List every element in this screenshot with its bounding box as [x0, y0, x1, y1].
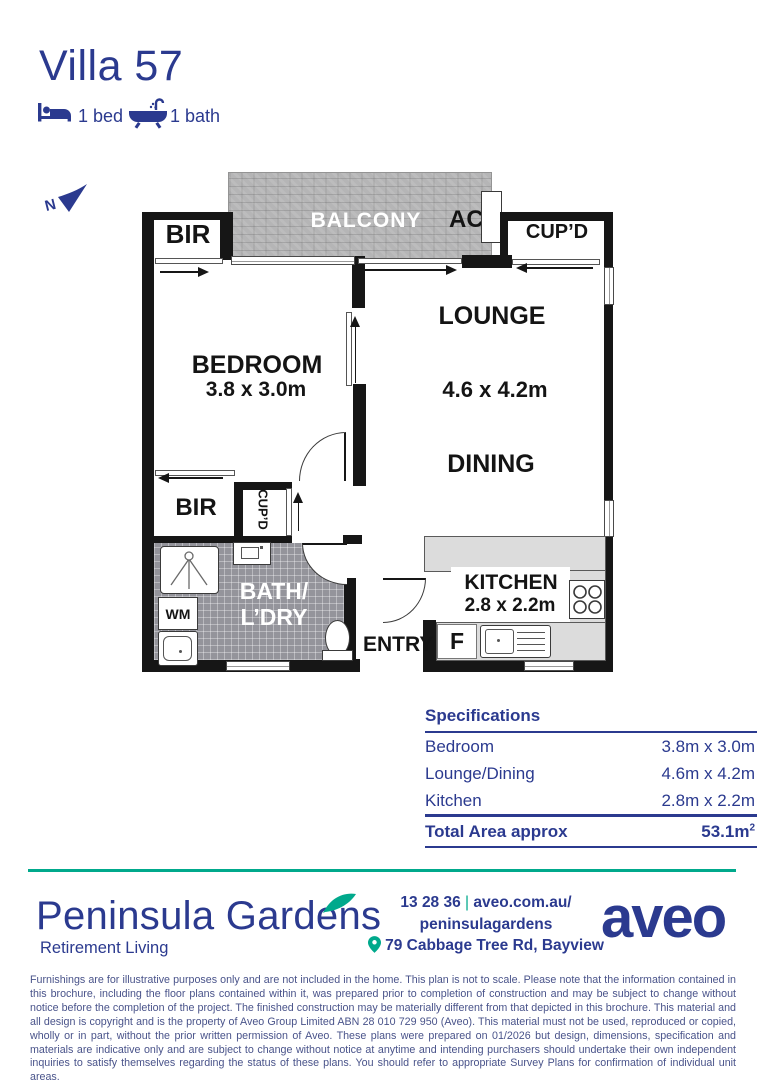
- arrow-right-icon: [446, 265, 457, 275]
- community-subtitle: Retirement Living: [40, 939, 168, 958]
- bedroom-door-arc: [299, 432, 346, 481]
- arrow-up-icon: [350, 316, 360, 327]
- brochure-page: Villa 57 1 bed 1 bath N: [0, 0, 764, 1080]
- kitchen-window-side: [604, 500, 614, 537]
- arrow-line: [160, 271, 198, 273]
- contact-block: 13 28 36 | aveo.com.au/ peninsulagardens…: [356, 892, 616, 957]
- address-line: 79 Cabbage Tree Rd, Bayview: [356, 935, 616, 957]
- wall: [500, 212, 508, 259]
- table-row: Lounge/Dining 4.6m x 4.2m: [425, 760, 757, 787]
- balcony-slider: [358, 258, 462, 264]
- address-text: 79 Cabbage Tree Rd, Bayview: [385, 937, 604, 954]
- bedroom-window: [231, 256, 355, 265]
- kitchen-window-bottom: [524, 661, 574, 671]
- total-area-row: Total Area approx 53.1m2: [425, 817, 757, 846]
- divider: [425, 846, 757, 849]
- website-handle[interactable]: peninsulagardens: [356, 914, 616, 936]
- wall: [142, 212, 154, 672]
- lounge-window: [604, 267, 614, 305]
- cupd-bottom-label: CUP’D: [256, 489, 271, 529]
- fridge-label: F: [450, 628, 464, 655]
- vanity-basin: [233, 542, 271, 565]
- cooktop: [569, 580, 605, 619]
- website-url[interactable]: aveo.com.au/: [473, 894, 571, 911]
- arrow-line: [355, 327, 357, 383]
- washing-machine: WM: [158, 597, 198, 630]
- bed-icon: [36, 102, 73, 132]
- bir-bottom-label: BIR: [175, 494, 216, 522]
- bedroom-label: BEDROOM: [192, 351, 323, 380]
- disclaimer-text: Furnishings are for illustrative purpose…: [30, 974, 736, 1080]
- arrow-line: [298, 503, 300, 531]
- kitchen-label: KITCHEN: [464, 571, 557, 595]
- north-label: N: [43, 196, 58, 215]
- arrow-line: [527, 267, 593, 269]
- ac-label: AC: [449, 206, 484, 234]
- bedroom-dims: 3.8 x 3.0m: [206, 378, 306, 402]
- lounge-dims: 4.6 x 4.2m: [442, 377, 547, 403]
- arrow-right-icon: [198, 267, 209, 277]
- entry-door-arc: [383, 578, 426, 623]
- north-arrow-icon: [58, 184, 88, 219]
- cupd-bottom-slider: [286, 488, 292, 536]
- bath-ldry-label: BATH/ L’DRY: [234, 578, 314, 630]
- aveo-logo: aveo: [601, 884, 725, 951]
- table-row: Kitchen 2.8m x 2.2m: [425, 787, 757, 814]
- arrow-left-icon: [516, 263, 527, 273]
- kitchen-dims: 2.8 x 2.2m: [465, 595, 556, 617]
- wm-label: WM: [166, 606, 191, 622]
- lounge-label: LOUNGE: [439, 302, 546, 331]
- specifications-table: Specifications Bedroom 3.8m x 3.0m Loung…: [425, 706, 757, 848]
- location-pin-icon: [368, 936, 381, 953]
- shower: [160, 546, 219, 594]
- bir-top-label: BIR: [166, 219, 211, 250]
- bir-top-slider: [155, 258, 223, 264]
- wall: [220, 212, 233, 260]
- entry-label: ENTRY: [363, 633, 433, 657]
- page-title: Villa 57: [39, 42, 183, 91]
- arrow-left-icon: [158, 473, 169, 483]
- laundry-tub: [158, 631, 198, 666]
- contact-line-1: 13 28 36 | aveo.com.au/: [356, 892, 616, 914]
- table-row: Bedroom 3.8m x 3.0m: [425, 733, 757, 760]
- cupd-top-label: CUP’D: [526, 221, 588, 244]
- arrow-line: [169, 477, 223, 479]
- phone-number[interactable]: 13 28 36: [400, 894, 460, 911]
- balcony-label: BALCONY: [311, 209, 422, 233]
- bath-icon: [128, 96, 168, 134]
- ac-unit: [481, 191, 502, 243]
- leaf-icon: [323, 892, 357, 919]
- wall: [234, 482, 243, 538]
- bath-window: [226, 661, 290, 671]
- bath-count: 1 bath: [170, 106, 220, 127]
- dining-label: DINING: [447, 450, 535, 479]
- fridge-space: F: [437, 624, 477, 659]
- separator: |: [465, 894, 469, 911]
- arrow-line: [360, 269, 446, 271]
- kitchen-sink: [480, 625, 551, 658]
- wall: [500, 212, 612, 221]
- specifications-title: Specifications: [425, 706, 757, 731]
- arrow-up-icon: [293, 492, 303, 503]
- footer-rule: [28, 869, 736, 872]
- wall: [353, 384, 366, 486]
- bed-count: 1 bed: [78, 106, 123, 127]
